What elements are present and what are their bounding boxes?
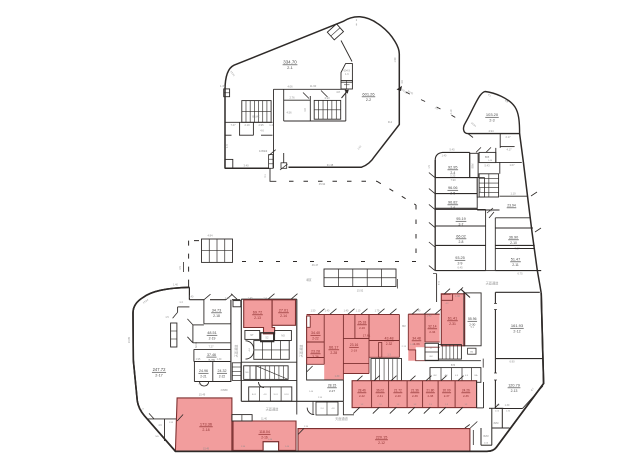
svg-text:220.15: 220.15: [376, 436, 388, 440]
svg-text:66.17: 66.17: [329, 346, 339, 350]
svg-text:2-10: 2-10: [510, 241, 517, 245]
svg-text:36.90: 36.90: [509, 236, 519, 240]
svg-text:1.30: 1.30: [217, 358, 222, 361]
svg-text:11.40: 11.40: [261, 417, 267, 420]
svg-text:95.19: 95.19: [456, 217, 466, 221]
svg-text:1.40: 1.40: [248, 297, 253, 300]
svg-text:4.90: 4.90: [324, 96, 330, 100]
svg-text:6M: 6M: [429, 356, 432, 358]
svg-text:36.02: 36.02: [376, 389, 384, 393]
svg-text:2-17: 2-17: [155, 374, 163, 378]
svg-text:34.40: 34.40: [311, 331, 320, 335]
svg-text:45.92: 45.92: [319, 182, 326, 186]
svg-text:2-40: 2-40: [395, 394, 401, 398]
svg-text:334.70: 334.70: [283, 60, 297, 65]
svg-text:32.44: 32.44: [195, 341, 198, 348]
svg-text:3.8988: 3.8988: [220, 390, 228, 392]
svg-text:NT: NT: [250, 334, 254, 337]
svg-text:2-7: 2-7: [459, 223, 464, 227]
svg-text:20.09: 20.09: [443, 389, 451, 393]
svg-text:2-1: 2-1: [287, 65, 293, 70]
svg-text:B1MC: B1MC: [252, 115, 259, 119]
svg-text:2-31: 2-31: [449, 322, 456, 326]
svg-text:2-41: 2-41: [377, 394, 383, 398]
svg-text:1.5: 1.5: [225, 144, 229, 148]
svg-text:2-5: 2-5: [450, 192, 455, 196]
svg-text:2-27: 2-27: [329, 389, 335, 393]
svg-text:1.79: 1.79: [375, 310, 380, 313]
svg-text:1.45: 1.45: [220, 84, 226, 88]
svg-text:天面通道: 天面通道: [266, 407, 280, 412]
svg-text:34.73: 34.73: [212, 309, 222, 313]
svg-text:2-18: 2-18: [202, 428, 209, 432]
svg-text:2.95: 2.95: [258, 123, 264, 127]
svg-text:2-12: 2-12: [378, 441, 385, 445]
svg-text:1.10: 1.10: [356, 310, 361, 313]
svg-text:2.76: 2.76: [289, 96, 295, 100]
svg-text:888: 888: [485, 155, 490, 159]
svg-text:23.16: 23.16: [350, 343, 359, 347]
svg-text:37.46: 37.46: [207, 353, 216, 357]
svg-text:161.93: 161.93: [511, 323, 524, 328]
svg-text:天面通道: 天面通道: [233, 344, 238, 358]
svg-text:2-33: 2-33: [413, 342, 419, 346]
svg-text:7.90: 7.90: [450, 178, 456, 182]
svg-text:1.40: 1.40: [325, 310, 330, 313]
svg-text:28.46: 28.46: [358, 389, 366, 393]
svg-text:69.72: 69.72: [253, 311, 263, 315]
svg-text:61.41: 61.41: [448, 317, 458, 321]
svg-text:103.20: 103.20: [486, 112, 499, 117]
svg-text:1.30: 1.30: [455, 295, 460, 298]
svg-text:601.26: 601.26: [362, 92, 375, 97]
svg-text:2.17: 2.17: [505, 135, 511, 139]
svg-text:2-26: 2-26: [312, 355, 319, 359]
svg-text:247.72: 247.72: [153, 367, 166, 372]
svg-text:2-19: 2-19: [209, 337, 216, 341]
svg-text:2-13: 2-13: [511, 389, 518, 393]
svg-text:66.02: 66.02: [456, 235, 466, 239]
svg-text:21.36: 21.36: [411, 389, 419, 393]
svg-text:96.06: 96.06: [448, 186, 458, 190]
svg-text:R-2: R-2: [388, 120, 393, 124]
svg-text:2-20: 2-20: [359, 326, 365, 330]
svg-text:2.19: 2.19: [244, 123, 250, 127]
svg-text:天面通道: 天面通道: [335, 416, 349, 421]
svg-text:31.38: 31.38: [327, 163, 334, 167]
svg-text:2-34: 2-34: [429, 330, 435, 334]
svg-text:2-14: 2-14: [280, 314, 287, 318]
svg-text:15.92: 15.92: [357, 289, 364, 293]
svg-text:2-18: 2-18: [213, 314, 220, 318]
svg-text:B8M: B8M: [472, 164, 475, 169]
svg-text:25.18: 25.18: [358, 321, 367, 325]
svg-text:55.96: 55.96: [468, 317, 477, 321]
svg-text:B6M: B6M: [480, 188, 482, 193]
svg-text:6.90: 6.90: [509, 360, 515, 364]
svg-text:24.95: 24.95: [128, 336, 131, 343]
svg-text:5.45: 5.45: [449, 148, 455, 152]
svg-text:2-11: 2-11: [512, 263, 519, 267]
svg-text:2-2: 2-2: [366, 98, 371, 102]
svg-text:1.07: 1.07: [509, 163, 515, 167]
svg-text:34.48: 34.48: [412, 337, 421, 341]
svg-text:1.95: 1.95: [196, 358, 201, 361]
svg-text:4.17: 4.17: [506, 148, 512, 152]
svg-text:2-13: 2-13: [254, 316, 261, 320]
svg-text:51.47: 51.47: [511, 258, 521, 262]
svg-text:2-20: 2-20: [208, 358, 215, 362]
svg-text:6.75: 6.75: [517, 272, 523, 276]
svg-text:2-8: 2-8: [459, 240, 464, 244]
svg-text:7.27: 7.27: [208, 345, 214, 349]
svg-text:82M: 82M: [494, 422, 499, 425]
svg-text:21.72: 21.72: [394, 389, 402, 393]
svg-text:1.30: 1.30: [505, 404, 510, 407]
svg-text:23.94: 23.94: [507, 204, 516, 208]
svg-text:24.32: 24.32: [218, 369, 227, 373]
svg-text:32.14: 32.14: [428, 325, 437, 329]
svg-text:1.40: 1.40: [416, 310, 421, 313]
svg-text:B76: B76: [451, 364, 456, 367]
svg-text:1.40: 1.40: [344, 310, 349, 313]
svg-text:118.04: 118.04: [259, 430, 270, 434]
svg-text:2-42: 2-42: [359, 394, 365, 398]
svg-text:6M: 6M: [470, 352, 473, 354]
svg-text:2-3: 2-3: [489, 119, 494, 123]
svg-text:23.28: 23.28: [311, 350, 320, 354]
svg-text:啊区: 啊区: [306, 278, 312, 282]
svg-text:93.25: 93.25: [455, 256, 465, 260]
svg-text:3.40: 3.40: [243, 164, 249, 168]
svg-text:1.40: 1.40: [189, 296, 194, 299]
svg-text:2-21: 2-21: [200, 375, 207, 379]
svg-text:4.56: 4.56: [286, 111, 292, 115]
svg-text:96.82: 96.82: [448, 201, 458, 205]
svg-text:1.40: 1.40: [173, 284, 178, 287]
svg-text:0-95E9: 0-95E9: [259, 149, 268, 153]
svg-text:4.8: 4.8: [336, 90, 340, 94]
svg-text:8M: 8M: [402, 325, 405, 328]
svg-text:4.94: 4.94: [207, 234, 213, 238]
svg-text:2-36: 2-36: [463, 394, 469, 398]
svg-text:1.3: 1.3: [345, 73, 349, 76]
svg-text:1.30: 1.30: [335, 375, 340, 378]
svg-text:天面通道: 天面通道: [298, 344, 303, 358]
svg-text:1.40: 1.40: [427, 315, 432, 318]
svg-text:11.90: 11.90: [310, 84, 317, 88]
svg-text:120.79: 120.79: [508, 384, 520, 388]
svg-text:173.36: 173.36: [200, 422, 213, 427]
svg-text:4.10: 4.10: [450, 109, 453, 114]
svg-text:NN: NN: [155, 436, 159, 438]
svg-text:48.51: 48.51: [207, 331, 217, 335]
svg-text:1.50: 1.50: [311, 310, 316, 313]
svg-text:2-39: 2-39: [412, 394, 418, 398]
svg-text:5.35: 5.35: [450, 174, 456, 178]
svg-text:1.50: 1.50: [394, 57, 397, 62]
svg-text:2-22: 2-22: [219, 375, 226, 379]
svg-text:2-19: 2-19: [351, 349, 357, 353]
svg-text:2-32: 2-32: [386, 342, 393, 346]
svg-text:B2M: B2M: [484, 435, 489, 438]
svg-text:1.4: 1.4: [269, 123, 273, 127]
svg-text:28.15: 28.15: [328, 384, 337, 388]
svg-text:2-37: 2-37: [444, 394, 450, 398]
svg-text:6M: 6M: [433, 375, 436, 377]
svg-text:2-9: 2-9: [458, 262, 463, 266]
svg-text:15.49: 15.49: [203, 448, 210, 451]
svg-text:5.43: 5.43: [484, 164, 490, 168]
svg-text:4.94: 4.94: [488, 129, 494, 133]
svg-text:4.6: 4.6: [260, 129, 264, 133]
svg-text:21.80: 21.80: [426, 389, 434, 393]
svg-text:92.95: 92.95: [448, 166, 458, 170]
svg-text:15.49: 15.49: [199, 393, 206, 397]
svg-text:1.10: 1.10: [510, 192, 516, 196]
svg-text:1.40: 1.40: [442, 155, 447, 158]
svg-text:43.48: 43.48: [385, 337, 394, 341]
svg-text:24.96: 24.96: [199, 369, 208, 373]
svg-text:27.01: 27.01: [279, 309, 289, 313]
svg-text:2-38: 2-38: [427, 394, 433, 398]
svg-text:7.27: 7.27: [230, 123, 236, 127]
svg-text:17.61: 17.61: [363, 334, 371, 338]
svg-text:46.47: 46.47: [312, 263, 319, 267]
svg-text:6.45: 6.45: [457, 266, 463, 270]
svg-text:24.26: 24.26: [462, 389, 470, 393]
svg-text:2-22: 2-22: [312, 337, 319, 341]
svg-text:2-28: 2-28: [330, 351, 337, 355]
svg-text:4.06: 4.06: [287, 85, 293, 89]
svg-text:2-12: 2-12: [513, 330, 520, 334]
svg-text:天面通道: 天面通道: [486, 281, 500, 286]
svg-text:1.30: 1.30: [225, 297, 230, 300]
